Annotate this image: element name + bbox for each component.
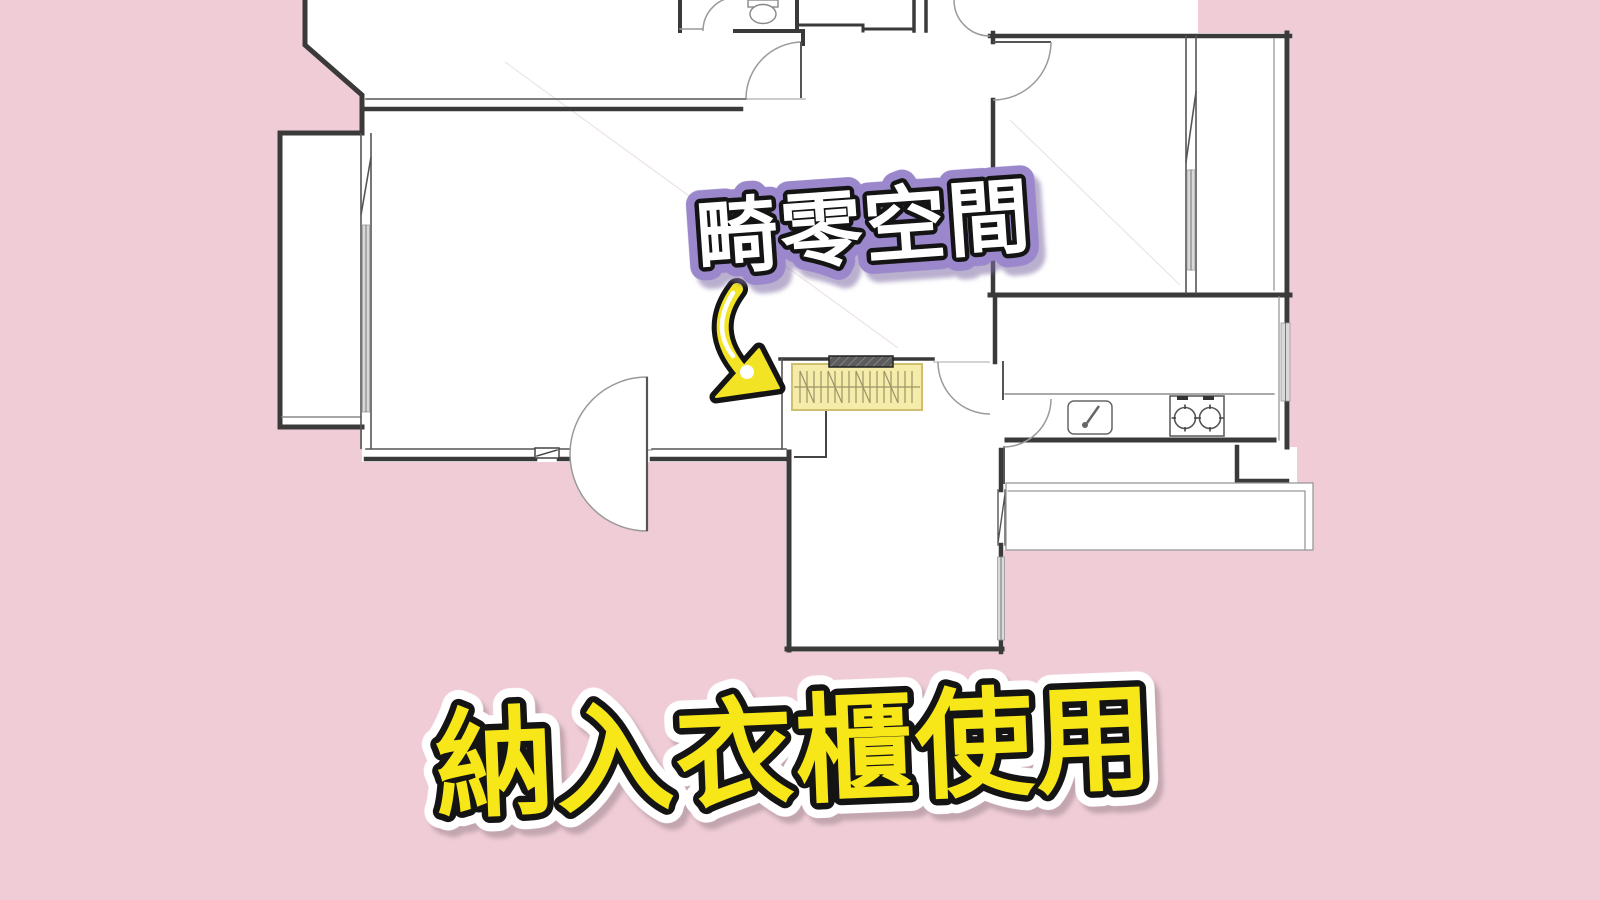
floor-plan-scene: 畸零空間 畸零空間 納入衣櫃使用 納入衣櫃使用 [0, 0, 1600, 900]
caption-title: 納入衣櫃使用 納入衣櫃使用 [433, 669, 1158, 836]
stove-icon [1170, 396, 1224, 436]
sink-icon [1068, 401, 1112, 434]
wardrobe-highlight [792, 356, 922, 410]
caption-text: 納入衣櫃使用 [433, 669, 1158, 836]
hatch-block [829, 356, 893, 367]
window-sill-marker [535, 448, 559, 458]
window-kitchen-right [1281, 323, 1290, 401]
toilet-icon [748, 0, 778, 24]
video-thumbnail-canvas: 畸零空間 畸零空間 納入衣櫃使用 納入衣櫃使用 [0, 0, 1600, 900]
